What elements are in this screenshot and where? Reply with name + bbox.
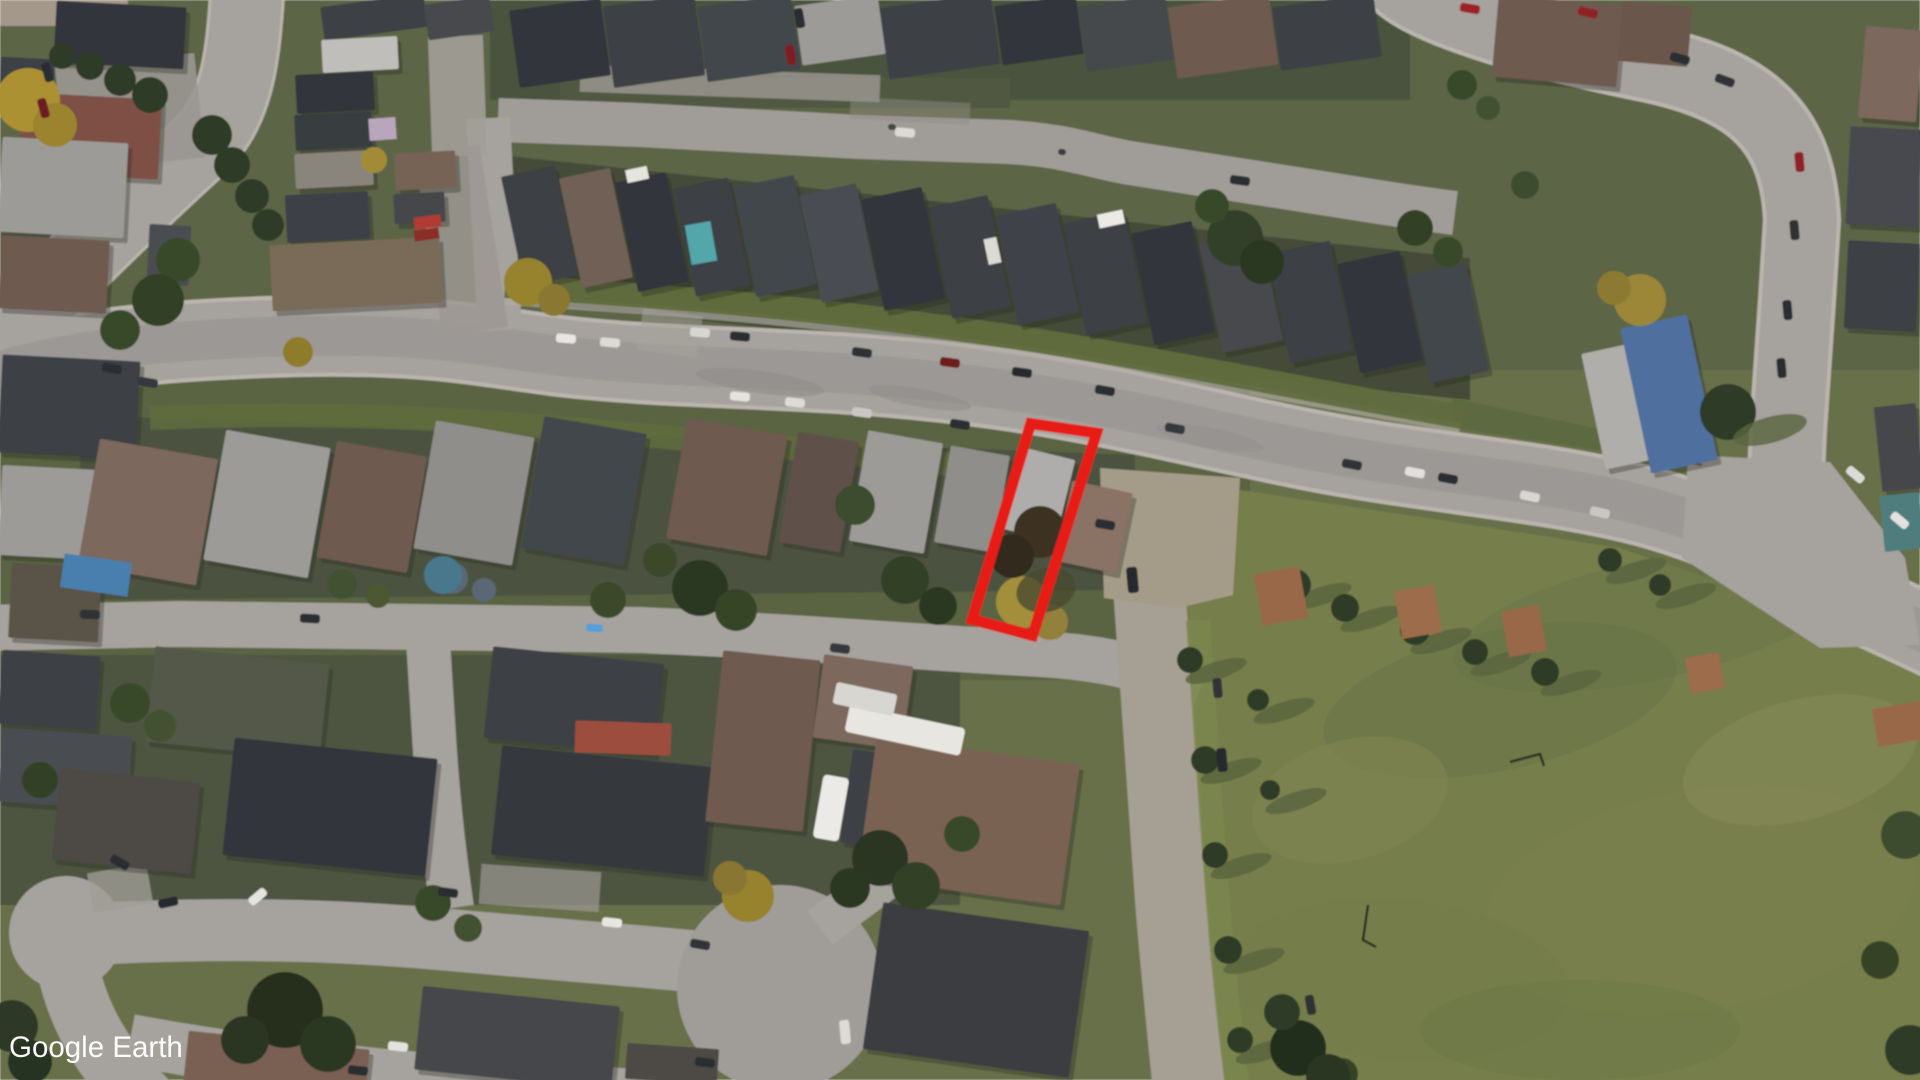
svg-text:Google Earth: Google Earth xyxy=(9,1031,183,1064)
